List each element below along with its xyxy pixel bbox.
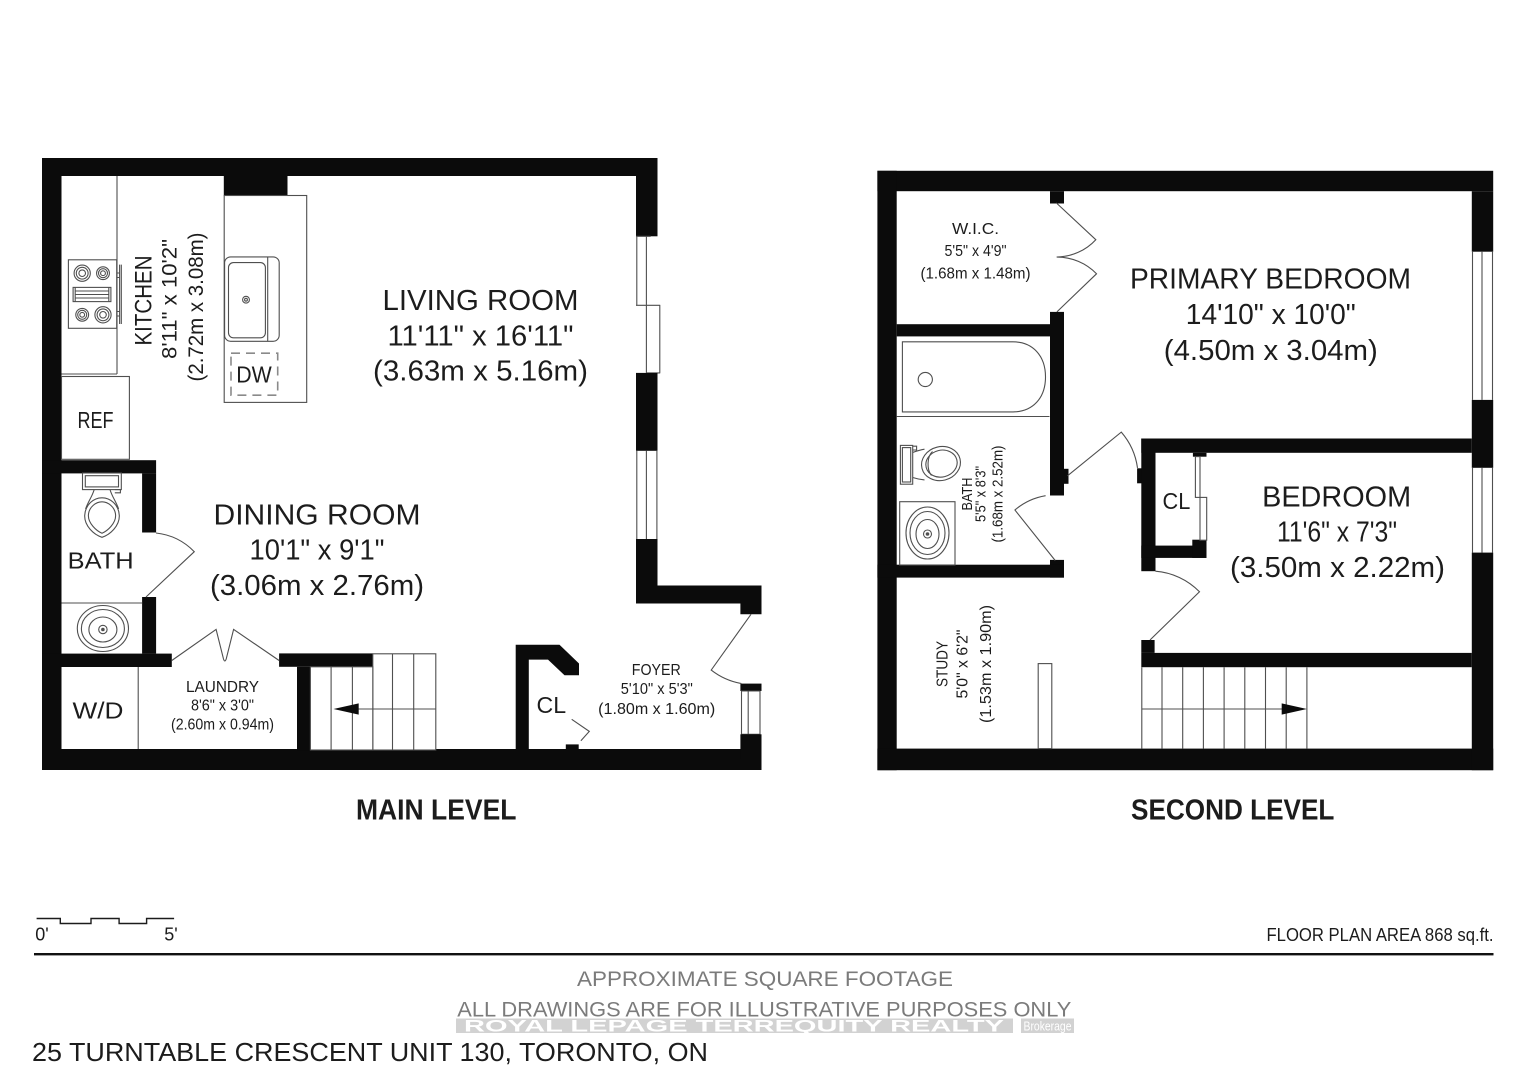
svg-text:W.I.C.: W.I.C. — [952, 221, 999, 238]
svg-text:FLOOR PLAN AREA 868 sq.ft.: FLOOR PLAN AREA 868 sq.ft. — [1267, 924, 1494, 945]
svg-text:APPROXIMATE SQUARE FOOTAGE: APPROXIMATE SQUARE FOOTAGE — [577, 968, 953, 991]
svg-text:(2.60m x 0.94m): (2.60m x 0.94m) — [171, 717, 274, 734]
svg-text:PRIMARY BEDROOM: PRIMARY BEDROOM — [1130, 264, 1411, 296]
svg-text:BEDROOM: BEDROOM — [1262, 481, 1411, 513]
svg-text:FOYER: FOYER — [632, 662, 681, 679]
svg-text:5'5" x 4'9": 5'5" x 4'9" — [945, 243, 1007, 260]
svg-text:10'1" x 9'1": 10'1" x 9'1" — [250, 535, 385, 567]
svg-text:14'10" x 10'0": 14'10" x 10'0" — [1186, 299, 1356, 331]
svg-text:STUDY: STUDY — [935, 641, 952, 687]
svg-text:DINING ROOM: DINING ROOM — [214, 500, 421, 532]
svg-text:(1.68m x 2.52m): (1.68m x 2.52m) — [990, 446, 1007, 543]
svg-text:REF: REF — [78, 407, 114, 433]
svg-text:LIVING ROOM: LIVING ROOM — [383, 285, 579, 317]
svg-text:(2.72m x 3.08m): (2.72m x 3.08m) — [185, 233, 208, 382]
svg-text:(1.68m x 1.48m): (1.68m x 1.48m) — [921, 266, 1031, 283]
svg-text:CL: CL — [537, 692, 567, 718]
svg-text:SECOND LEVEL: SECOND LEVEL — [1131, 794, 1334, 826]
svg-text:MAIN LEVEL: MAIN LEVEL — [356, 794, 517, 826]
svg-text:CL: CL — [1163, 488, 1191, 514]
svg-text:KITCHEN: KITCHEN — [131, 256, 158, 346]
svg-text:11'11" x 16'11": 11'11" x 16'11" — [388, 321, 574, 353]
svg-text:LAUNDRY: LAUNDRY — [186, 679, 259, 696]
svg-text:(4.50m x 3.04m): (4.50m x 3.04m) — [1164, 335, 1378, 367]
svg-text:(3.63m x 5.16m): (3.63m x 5.16m) — [373, 356, 588, 388]
svg-text:(1.80m x 1.60m): (1.80m x 1.60m) — [598, 701, 715, 718]
svg-text:W/D: W/D — [73, 698, 124, 724]
svg-text:8'6" x 3'0": 8'6" x 3'0" — [191, 698, 254, 715]
svg-text:5'0" x 6'2": 5'0" x 6'2" — [955, 630, 972, 699]
svg-text:(3.06m x 2.76m): (3.06m x 2.76m) — [210, 570, 424, 602]
svg-text:0': 0' — [35, 925, 48, 945]
svg-text:11'6" x 7'3": 11'6" x 7'3" — [1277, 517, 1397, 549]
svg-text:5': 5' — [164, 925, 177, 945]
svg-text:(1.53m x 1.90m): (1.53m x 1.90m) — [978, 605, 995, 723]
svg-text:DW: DW — [236, 362, 272, 388]
svg-text:25 TURNTABLE CRESCENT UNIT 130: 25 TURNTABLE CRESCENT UNIT 130, TORONTO,… — [32, 1037, 708, 1067]
svg-text:5'10" x 5'3": 5'10" x 5'3" — [621, 681, 693, 698]
svg-text:8'11" x 10'2": 8'11" x 10'2" — [159, 239, 182, 359]
svg-text:5'5" x 8'3": 5'5" x 8'3" — [973, 466, 990, 522]
svg-text:BATH: BATH — [68, 547, 134, 573]
svg-text:(3.50m x 2.22m): (3.50m x 2.22m) — [1230, 552, 1445, 584]
svg-text:ALL DRAWINGS ARE FOR ILLUSTRAT: ALL DRAWINGS ARE FOR ILLUSTRATIVE PURPOS… — [457, 998, 1071, 1021]
